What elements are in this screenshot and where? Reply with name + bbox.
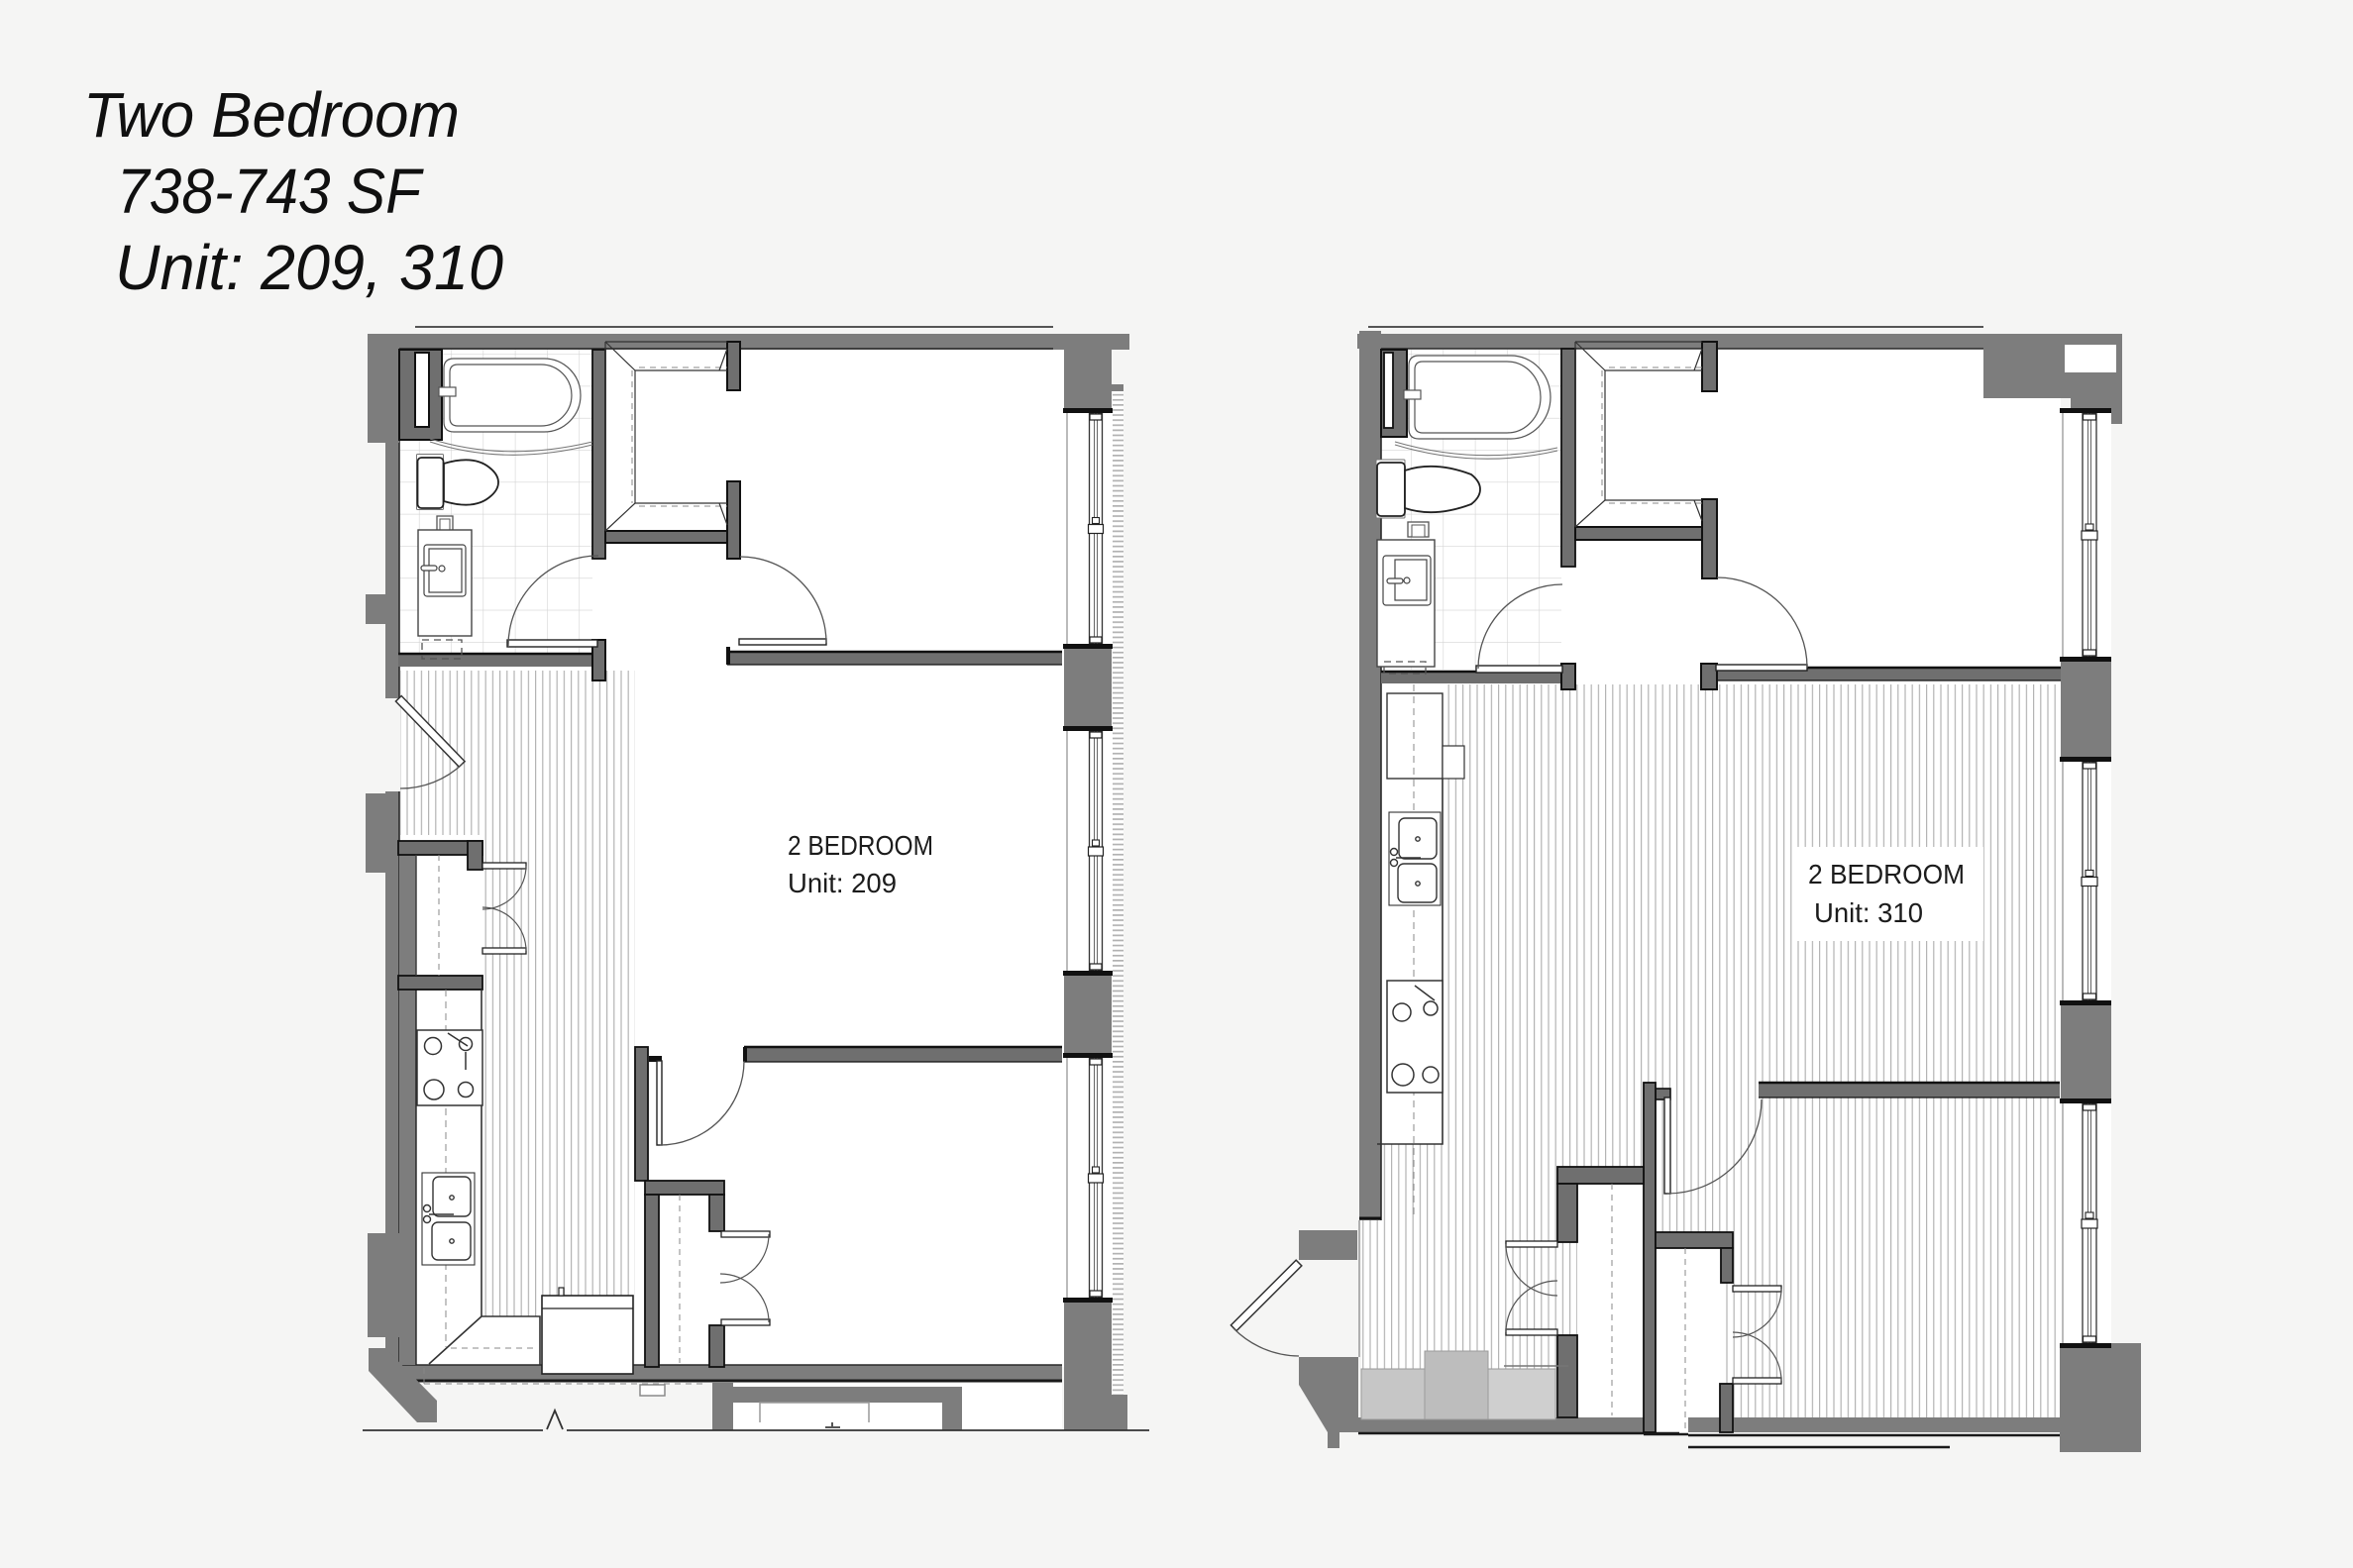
- svg-text:Unit: 209, 310: Unit: 209, 310: [115, 232, 503, 303]
- svg-text:2 BEDROOM: 2 BEDROOM: [788, 830, 933, 861]
- svg-text:Unit: 209: Unit: 209: [788, 868, 897, 898]
- svg-text:738-743 SF: 738-743 SF: [117, 156, 425, 227]
- svg-text:Unit: 310: Unit: 310: [1814, 897, 1923, 928]
- svg-text:Two Bedroom: Two Bedroom: [83, 79, 460, 151]
- svg-text:2 BEDROOM: 2 BEDROOM: [1808, 859, 1965, 889]
